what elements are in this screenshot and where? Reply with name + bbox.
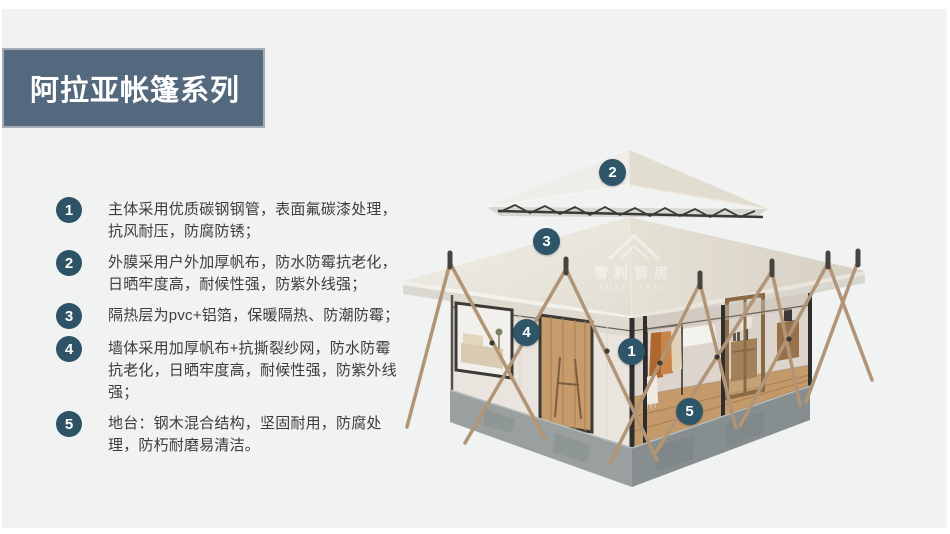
page-title: 阿拉亚帐篷系列 — [4, 67, 240, 109]
feature-text: 地台：钢木混合结构，坚固耐用，防腐处理，防朽耐磨易清洁。 — [108, 413, 400, 457]
left-window — [456, 303, 512, 378]
tent-illustration: 雪利营房 XUELI TENT — [395, 137, 950, 533]
feature-item-2: 2 外膜采用户外加厚帆布，防水防霉抗老化，日晒牢度高，耐候性强，防紫外线强； — [56, 252, 402, 296]
roof-truss — [487, 205, 768, 218]
feature-number-badge: 2 — [56, 250, 82, 276]
feature-text: 隔热层为pvc+铝箔，保暖隔热、防潮防霉； — [108, 305, 400, 327]
tent-badge-5: 5 — [676, 398, 703, 425]
feature-item-4: 4 墙体采用加厚帆布+抗撕裂纱网，防水防霉抗老化，日晒牢度高，耐候性强，防紫外线… — [56, 338, 402, 404]
title-banner: 阿拉亚帐篷系列 — [2, 48, 265, 128]
feature-number-badge: 5 — [56, 411, 82, 437]
feature-text: 外膜采用户外加厚帆布，防水防霉抗老化，日晒牢度高，耐候性强，防紫外线强； — [108, 252, 400, 296]
upper-roof — [487, 150, 768, 209]
slide: 阿拉亚帐篷系列 1 主体采用优质碳钢钢管，表面氟碳漆处理，抗风耐压，防腐防锈； … — [0, 0, 950, 534]
watermark-en: XUELI TENT — [599, 285, 669, 292]
tent-badge-4: 4 — [513, 319, 540, 346]
feature-item-3: 3 隔热层为pvc+铝箔，保暖隔热、防潮防霉； — [56, 305, 402, 329]
feature-list: 1 主体采用优质碳钢钢管，表面氟碳漆处理，抗风耐压，防腐防锈； 2 外膜采用户外… — [56, 199, 402, 466]
tent-svg: 雪利营房 XUELI TENT — [395, 137, 950, 533]
watermark-cn: 雪利营房 — [594, 265, 674, 281]
tent-badge-1: 1 — [618, 338, 645, 365]
feature-item-1: 1 主体采用优质碳钢钢管，表面氟碳漆处理，抗风耐压，防腐防锈； — [56, 199, 402, 243]
left-door — [540, 315, 592, 432]
feature-item-5: 5 地台：钢木混合结构，坚固耐用，防腐处理，防朽耐磨易清洁。 — [56, 413, 402, 457]
feature-number-badge: 4 — [56, 336, 82, 362]
feature-text: 主体采用优质碳钢钢管，表面氟碳漆处理，抗风耐压，防腐防锈； — [108, 199, 400, 243]
feature-number-badge: 3 — [56, 303, 82, 329]
tent-badge-2: 2 — [599, 159, 626, 186]
tent-badge-3: 3 — [533, 228, 560, 255]
feature-text: 墙体采用加厚帆布+抗撕裂纱网，防水防霉抗老化，日晒牢度高，耐候性强，防紫外线强； — [108, 338, 400, 404]
feature-number-badge: 1 — [56, 197, 82, 223]
